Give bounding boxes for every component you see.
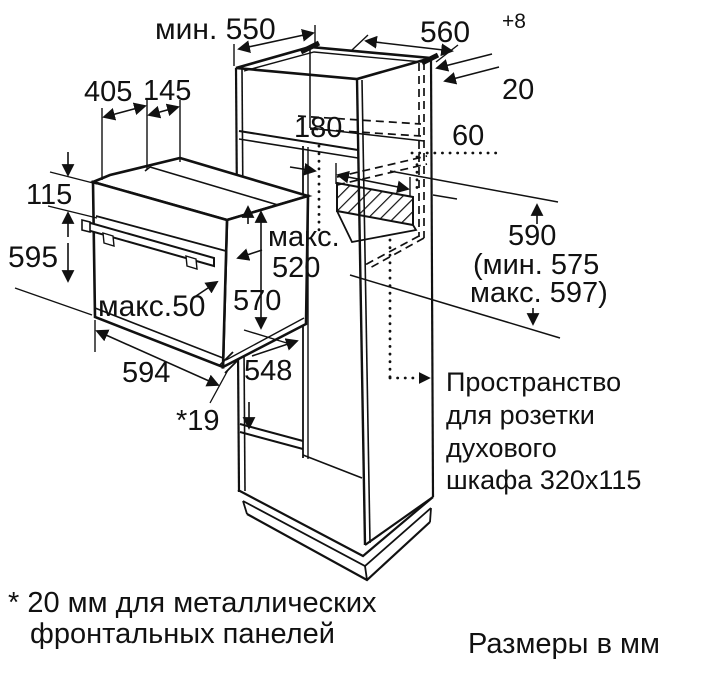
footnote-line2: фронтальных панелей	[30, 618, 335, 650]
cabinet-top-face	[236, 47, 431, 79]
footnote-line1: * 20 мм для металлических	[8, 587, 377, 619]
label-max-depth-word: макс.	[268, 221, 340, 253]
label-socket-offset: 60	[452, 120, 484, 152]
label-top-depth: мин. 550	[155, 13, 276, 46]
label-niche-width: 560	[420, 16, 470, 49]
label-niche-height-max: макс. 597)	[470, 277, 608, 309]
label-front-offset: *19	[176, 405, 220, 437]
label-niche-height: 590	[508, 220, 556, 252]
socket-note-line2: для розетки	[446, 400, 595, 430]
label-panel-height: 115	[26, 179, 72, 211]
units-note: Размеры в мм	[468, 628, 660, 660]
cabinet-right-back-edge	[431, 58, 433, 497]
label-max-depth-value: 520	[272, 252, 320, 284]
socket-note-line1: Пространство	[446, 367, 621, 397]
label-shelf-gap: 180	[294, 112, 342, 144]
label-door-max-protrusion: макс.50	[98, 290, 205, 323]
dotted-leaders	[319, 146, 496, 378]
label-inner-height: 570	[233, 285, 281, 317]
label-oven-top-rear: 145	[143, 75, 191, 107]
socket-zone-hatch	[337, 183, 416, 242]
label-niche-width-tolerance: +8	[502, 10, 526, 33]
installation-diagram: мин. 550 560 +8 20 405 145 180 60 115 59…	[0, 0, 701, 674]
dim-145-arrow	[149, 107, 178, 115]
dim-wall-gap-arrow	[437, 54, 492, 68]
label-wall-gap: 20	[502, 74, 534, 106]
socket-note-line4: шкафа 320x115	[446, 465, 641, 495]
label-oven-height: 595	[8, 241, 58, 274]
socket-note-line3: духового	[446, 433, 557, 463]
label-oven-depth: 548	[244, 355, 292, 387]
label-oven-top-front: 405	[84, 76, 132, 108]
label-oven-width: 594	[122, 357, 170, 389]
